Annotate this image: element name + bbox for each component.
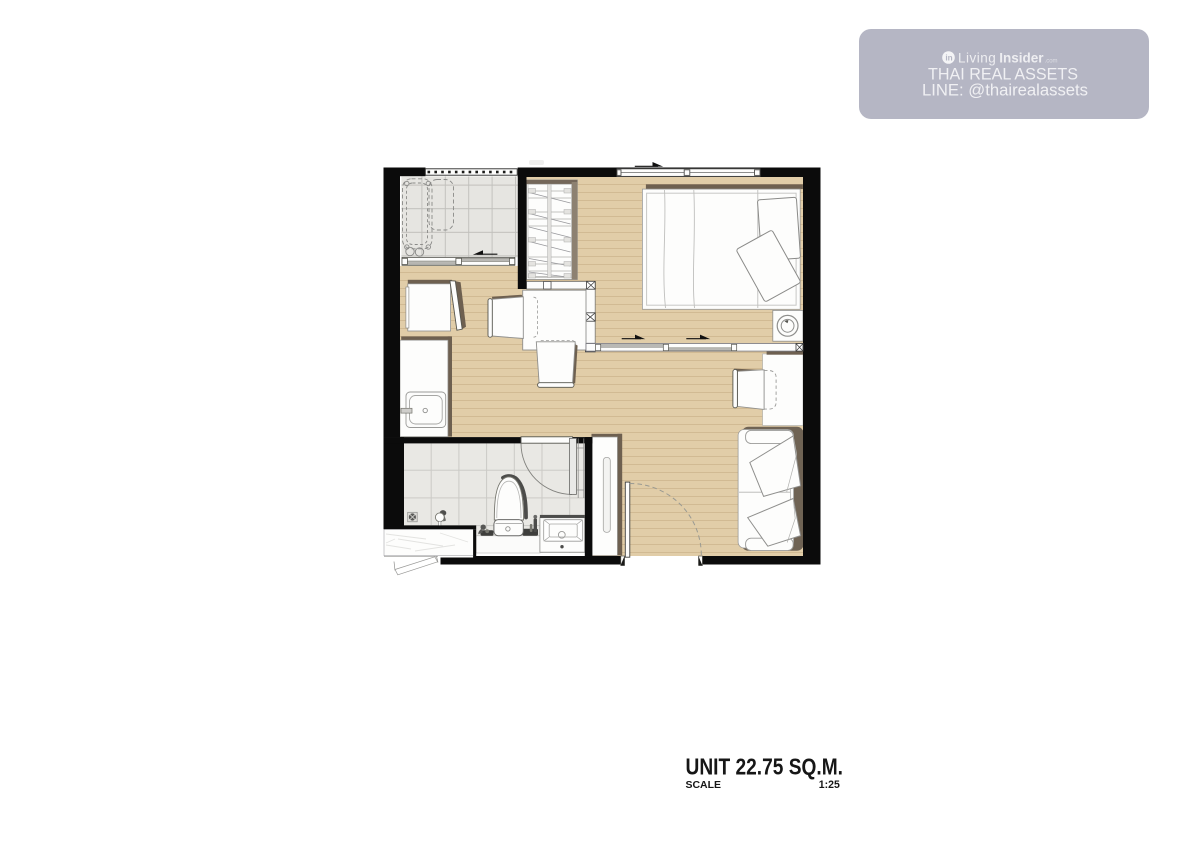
svg-text:1:25: 1:25 bbox=[819, 779, 840, 791]
svg-text:in: in bbox=[945, 54, 952, 63]
svg-text:SCALE: SCALE bbox=[686, 780, 722, 791]
svg-text:UNIT 22.75 SQ.M.: UNIT 22.75 SQ.M. bbox=[686, 754, 844, 780]
svg-text:LivingInsider.com: LivingInsider.com bbox=[958, 51, 1058, 66]
svg-text:LINE: @thairealassets: LINE: @thairealassets bbox=[922, 82, 1088, 100]
